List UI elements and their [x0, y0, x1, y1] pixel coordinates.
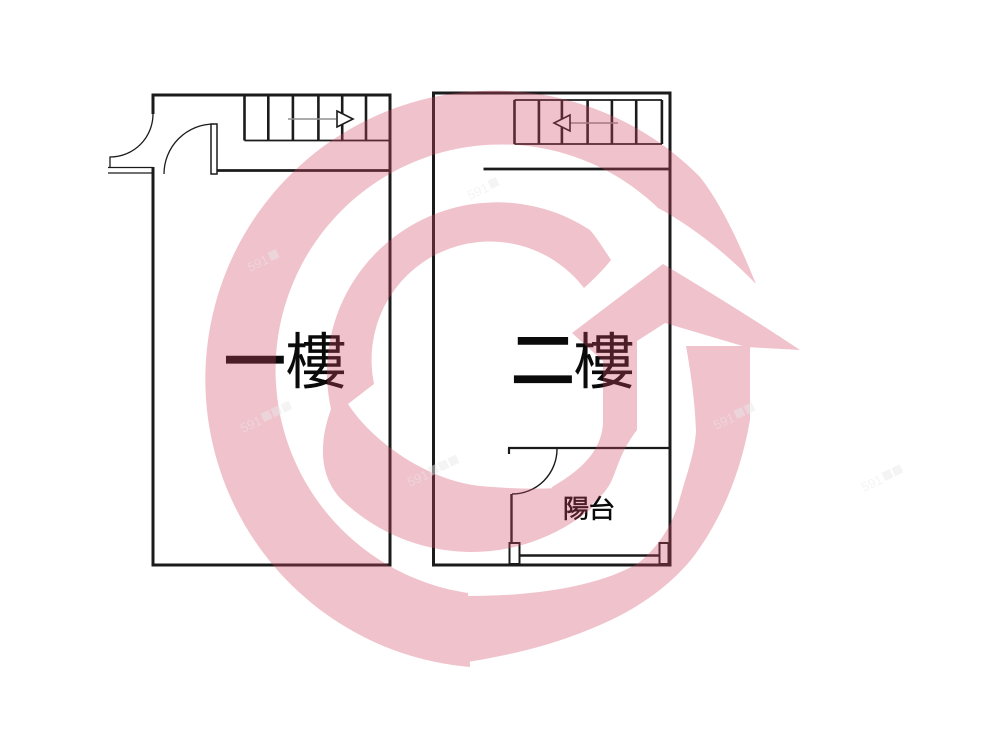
svg-text:591: 591	[859, 472, 885, 495]
svg-text:591: 591	[465, 180, 491, 203]
